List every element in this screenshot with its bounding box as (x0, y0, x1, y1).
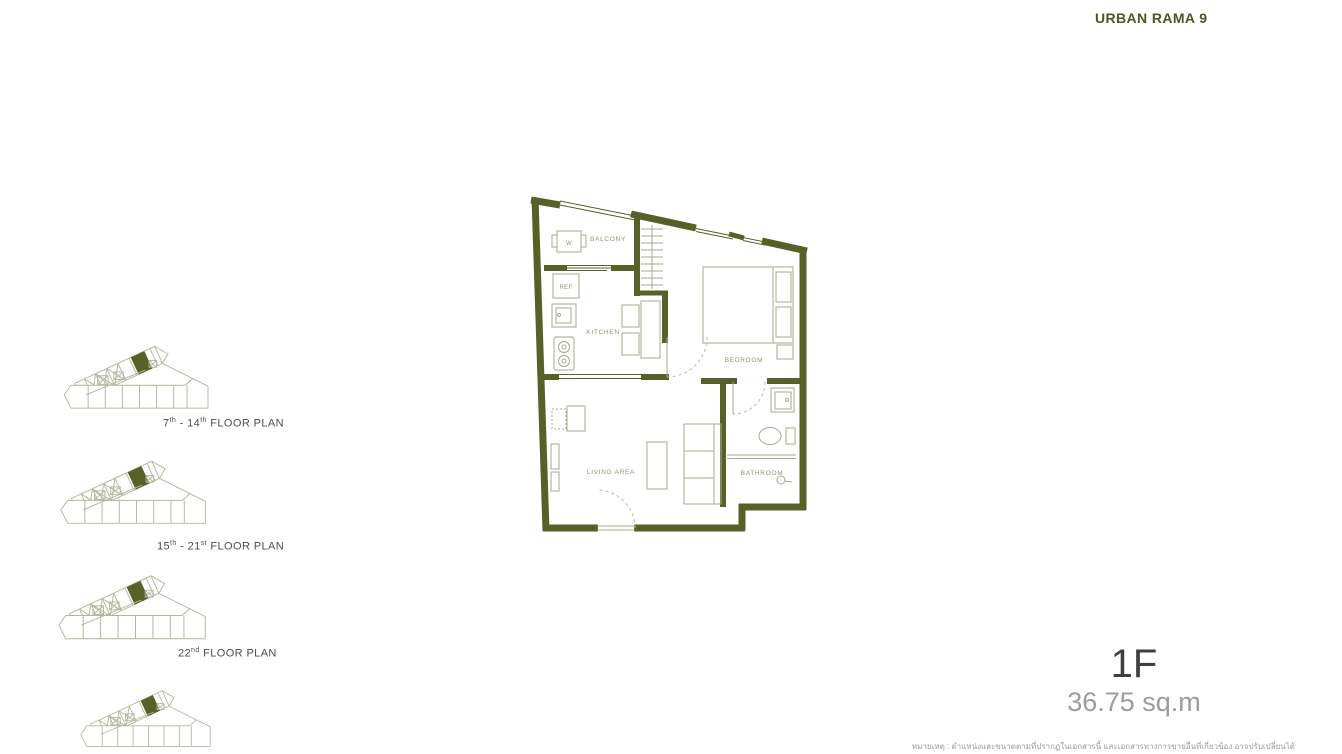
floor-plan-thumb-7-14[interactable] (62, 332, 217, 410)
brand-title: URBAN RAMA 9 (1095, 10, 1207, 26)
floor-plan-thumb-22[interactable] (58, 560, 213, 642)
floor-plan-thumb-partial[interactable] (80, 672, 217, 754)
floor-plan-thumb-15-21[interactable] (60, 446, 213, 526)
floor-plan-label-22: 22nd FLOOR PLAN (178, 647, 277, 660)
room-label-balcony: BALCONY (590, 236, 626, 243)
unit-type: 1F (1028, 642, 1240, 686)
floor-plan-label-15-21: 15th - 21st FLOOR PLAN (157, 540, 284, 553)
unit-area: 36.75 sq.m (1028, 686, 1240, 718)
room-label-bedroom: BEDROOM (725, 357, 764, 364)
floor-plan-label-7-14: 7th - 14th FLOOR PLAN (163, 417, 284, 430)
refrigerator-label: REF (560, 285, 573, 291)
room-label-living-area: LIVING AREA (587, 469, 635, 476)
footnote-disclaimer: หมายเหตุ : ตำแหน่งและขนาดตามที่ปรากฏในเอ… (912, 740, 1295, 753)
room-label-kitchen: KITCHEN (586, 329, 619, 336)
floor-plate-15-21-drawing (60, 446, 213, 526)
unit-floor-plan: W BALCONY REF KITCHEN BEDROOM BATHR (515, 185, 825, 545)
floor-plate-22-drawing (58, 560, 213, 642)
washer-label: W (566, 241, 572, 247)
floor-plate-partial-drawing (80, 672, 217, 754)
floor-plate-7-14-drawing (62, 332, 217, 410)
unit-info: 1F 36.75 sq.m (1028, 642, 1240, 718)
room-label-bathroom: BATHROOM (741, 470, 784, 477)
